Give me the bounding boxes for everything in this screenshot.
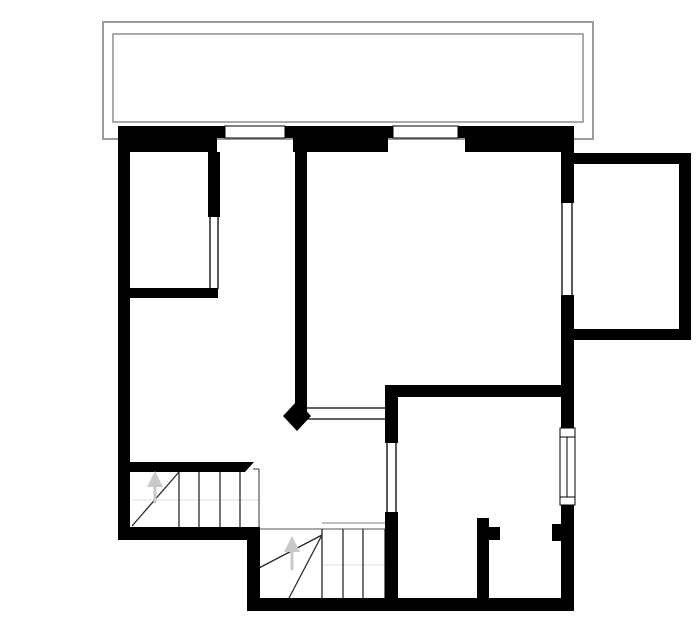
right-exterior-wall-top — [561, 126, 574, 203]
annex-bottom-wall — [573, 329, 691, 340]
closet-stub-jamb — [489, 527, 500, 540]
bottomright-room-top-wall — [385, 385, 562, 397]
annex-right-wall — [679, 153, 691, 340]
middle-partition-wall — [295, 152, 307, 414]
right-exterior-wall-mid — [561, 295, 574, 428]
step-wall — [247, 533, 260, 603]
top-wall-lower-middle — [293, 138, 388, 152]
bottomright-room-left-wall-lower — [385, 512, 398, 611]
right-wall-jamb — [552, 524, 562, 541]
floor-plan-canvas — [0, 0, 700, 644]
bottom-wall-left — [118, 527, 260, 540]
room1-bottom-wall — [130, 288, 218, 298]
bottom-wall-right — [247, 598, 574, 611]
top-wall-upper-right — [458, 126, 574, 138]
top-wall-lower-left — [118, 138, 217, 152]
annex-top-wall — [573, 153, 691, 164]
top-wall-upper-left — [118, 126, 225, 138]
stair1-top-wall — [130, 462, 245, 472]
background — [0, 0, 700, 644]
floor-plan — [0, 0, 700, 644]
room1-right-wall — [208, 152, 220, 217]
top-wall-upper-middle — [285, 126, 393, 138]
window-top-1 — [225, 126, 285, 138]
closet-stub-wall — [477, 518, 489, 603]
bottomright-room-left-wall-upper — [385, 385, 398, 443]
window-top-2 — [393, 126, 458, 138]
left-exterior-wall — [118, 126, 130, 540]
right-exterior-wall-low — [561, 505, 574, 611]
top-wall-lower-right — [465, 138, 574, 152]
